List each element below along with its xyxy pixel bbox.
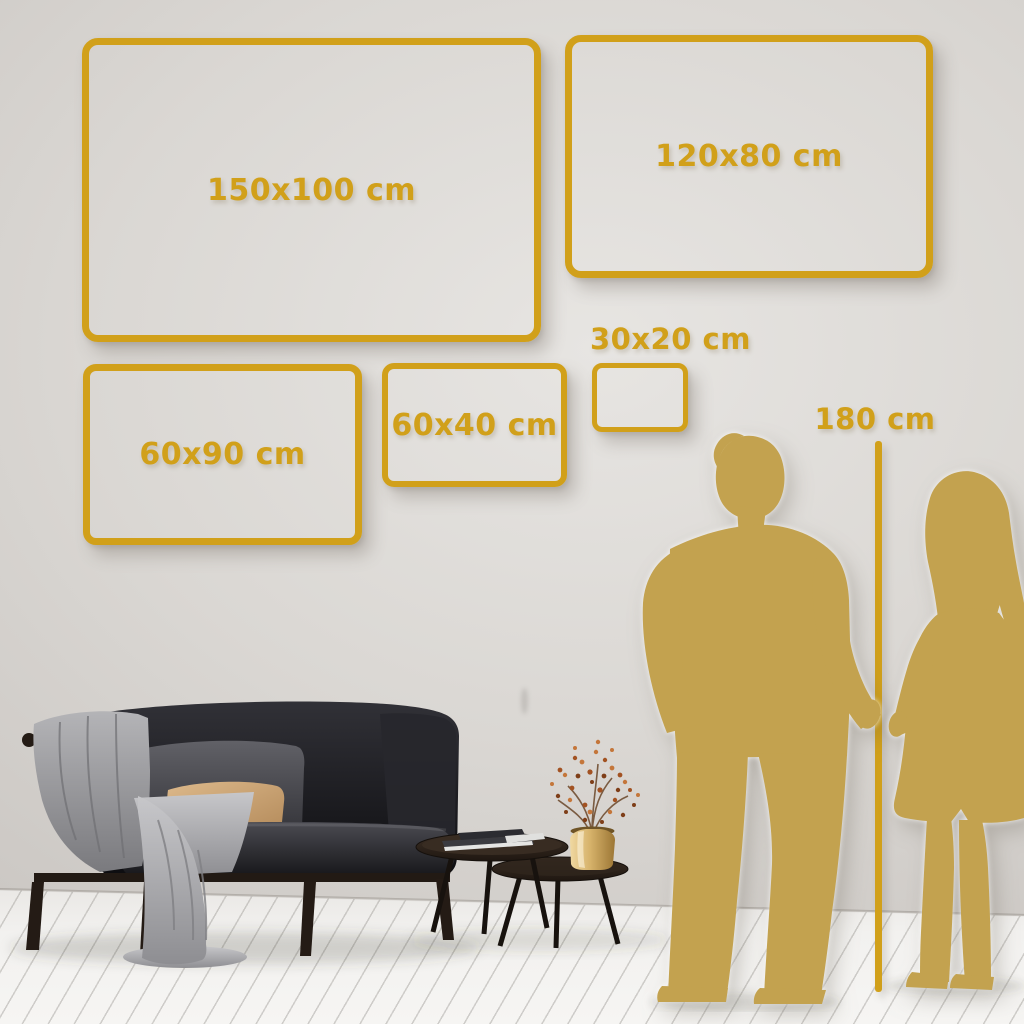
size-label-30x20: 30x20 cm (590, 322, 751, 356)
size-label-150x100: 150x100 cm (207, 173, 416, 208)
size-label-120x80: 120x80 cm (655, 139, 843, 174)
woman-silhouette (886, 471, 1024, 990)
size-label-30x20-wrap: 30x20 cm (590, 322, 810, 356)
size-label-60x40: 60x40 cm (391, 408, 557, 443)
furniture-floor-shadows (10, 929, 670, 964)
wall-art-size-guide-scene: 150x100 cm 120x80 cm 60x90 cm 60x40 cm 3… (0, 0, 1024, 1024)
couple-silhouette-graphic (630, 428, 1024, 1012)
size-frame-60x90: 60x90 cm (83, 364, 362, 545)
man-silhouette (643, 433, 884, 1004)
size-frame-60x40: 60x40 cm (382, 363, 567, 487)
branch-stems (558, 764, 628, 832)
size-frame-120x80: 120x80 cm (565, 35, 933, 278)
living-room-furniture-graphic (0, 690, 700, 1024)
size-frame-150x100: 150x100 cm (82, 38, 541, 342)
size-label-60x90: 60x90 cm (139, 437, 305, 472)
size-frame-30x20 (592, 363, 688, 432)
